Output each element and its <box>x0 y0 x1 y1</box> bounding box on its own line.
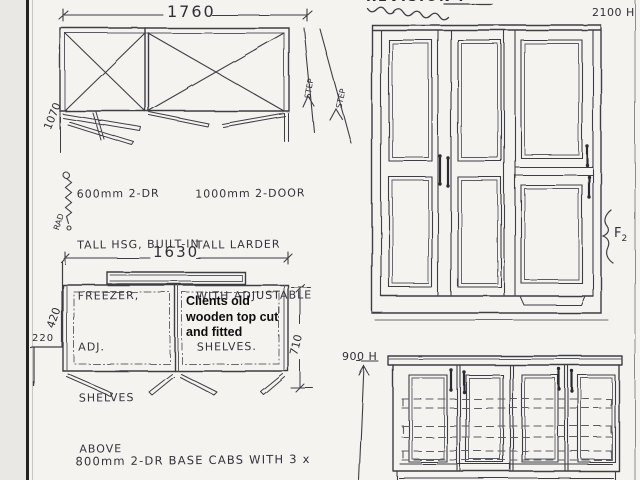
dim-1760: 1760 <box>167 2 216 21</box>
base-elevation-drawing <box>357 356 622 480</box>
freezer-note-line: 600mm 2-DR <box>77 184 200 202</box>
radiator-symbol <box>63 172 71 230</box>
revision-title-clipped: REVISION P <box>366 0 470 5</box>
freezer-note-line: ADJ. <box>78 337 201 355</box>
worktop-note-line: Clients old <box>186 294 288 310</box>
door-swing-leaves <box>63 112 288 145</box>
freezer-zone-subscript: 2 <box>621 234 627 244</box>
freezer-zone-label: F2 <box>614 222 627 244</box>
dimension-line-900 <box>357 361 378 480</box>
worktop <box>388 356 622 365</box>
worktop-note-line: wooden top cut <box>186 310 288 326</box>
dim-900h: 900 H <box>342 350 377 363</box>
pullout-trays-dashed <box>402 399 612 460</box>
f2-brace <box>603 210 613 263</box>
dim-220: 220 <box>32 333 54 344</box>
base-note-line: 800mm 2-DR BASE CABS WITH 3 x <box>75 450 344 472</box>
dim-1630: 1630 <box>153 243 199 261</box>
worktop-note-line: and fitted <box>186 325 288 341</box>
plan-tall-units-drawing <box>59 9 312 152</box>
tall-elevation-drawing <box>367 4 613 320</box>
larder-note-line: TALL LARDER <box>196 235 312 253</box>
freezer-note-line: FREEZER, <box>78 286 201 304</box>
larder-note-line: 1000mm 2-DOOR <box>195 184 311 202</box>
worktop-typed-note: Clients old wooden top cut and fitted <box>186 294 288 341</box>
title-underline-squiggle <box>367 4 492 19</box>
freezer-note-line: SHELVES <box>79 388 202 406</box>
base-cabs-note-clipped: BE <box>84 476 102 480</box>
base-cabs-note: 800mm 2-DR BASE CABS WITH 3 x WOODEN PUL… <box>75 412 346 480</box>
scanned-sketch-page: REVISION P 1760 1070 STEP STEP RAD 600mm… <box>0 0 640 480</box>
dim-2100h: 2100 H <box>592 6 635 19</box>
